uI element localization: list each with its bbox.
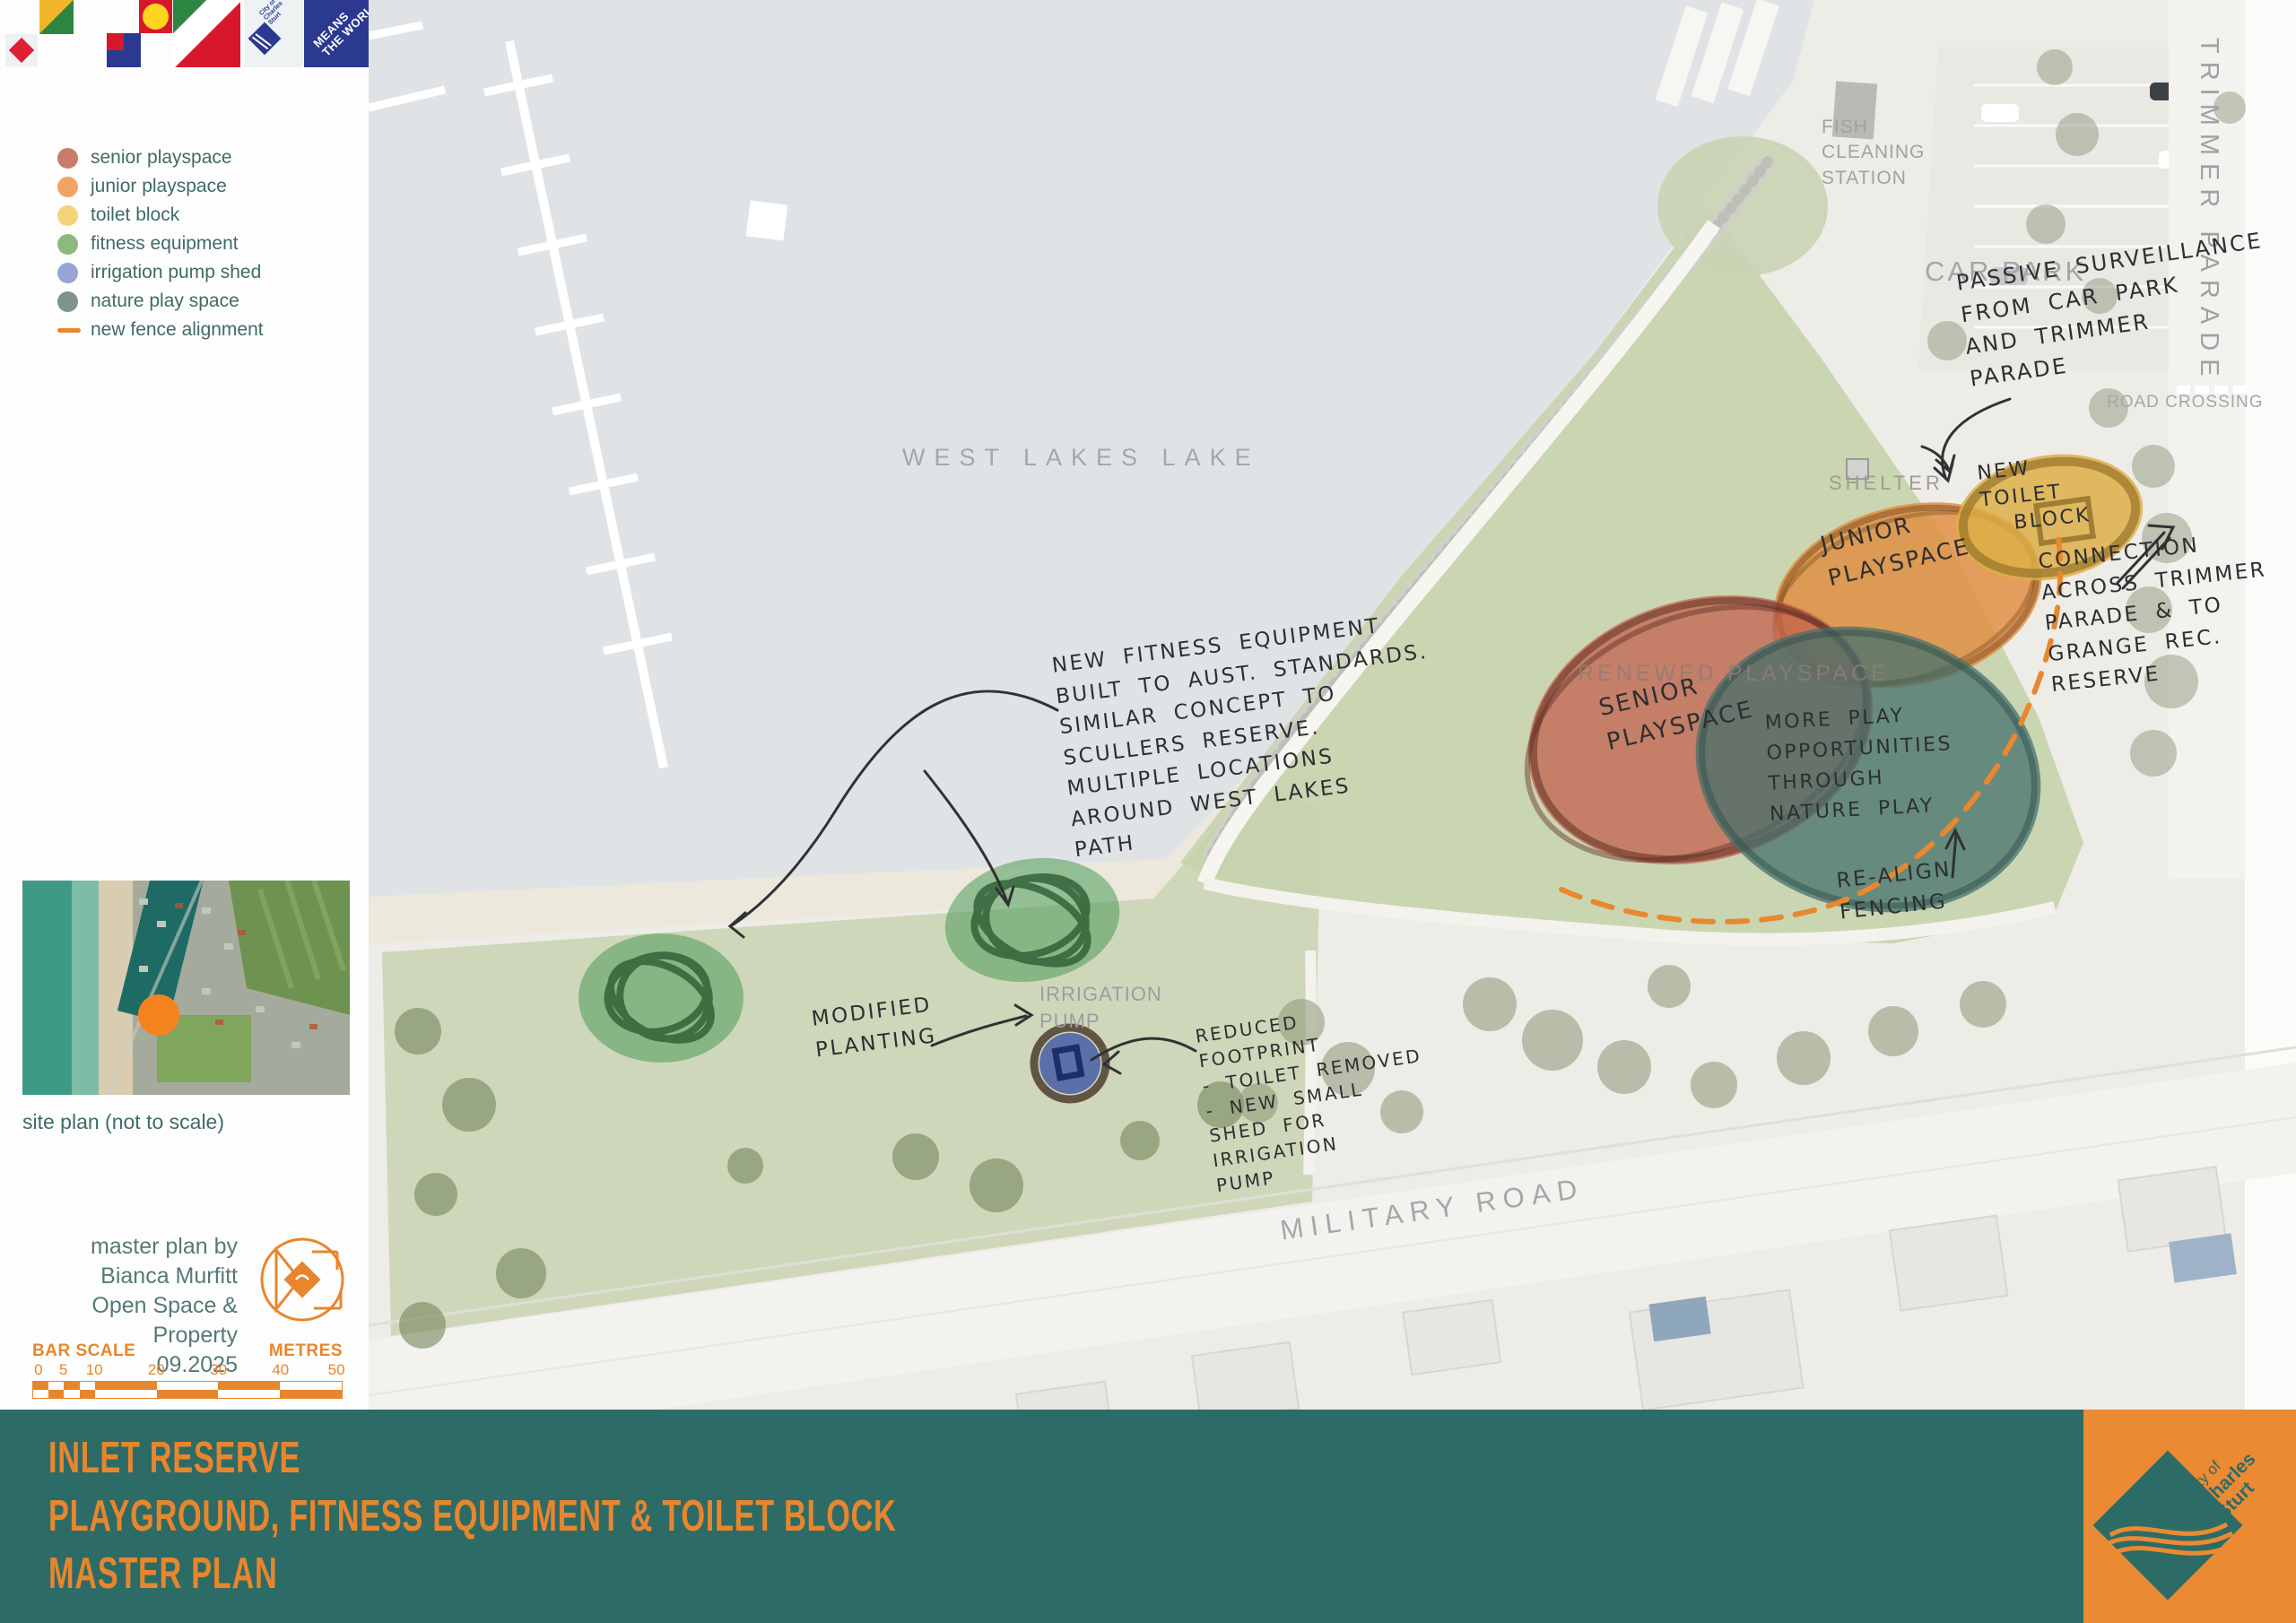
tick: 30	[210, 1361, 227, 1379]
label-fish-cleaning-station: FISH CLEANING STATION	[1822, 115, 1925, 191]
plan-title-line-1: INLET RESERVE	[48, 1429, 897, 1488]
means-the-world-text: MEANS THE WORLD	[311, 0, 369, 58]
junior-playspace-swatch-icon	[57, 177, 78, 197]
nature-play-space-swatch-icon	[57, 291, 78, 312]
brand-strip: City of Charles Sturt MEANS THE WORLD	[4, 0, 380, 72]
label-irrigation-pump: IRRIGATION PUMP	[1039, 981, 1162, 1034]
annotation-new-fitness-equipment: NEW FITNESS EQUIPMENT BUILT TO AUST. STA…	[1050, 605, 1448, 866]
bar-scale-ticks: 0 5 10 20 30 40 50	[32, 1361, 343, 1381]
legend-label: senior playspace	[91, 147, 232, 169]
legend-item-toilet-block: toilet block	[57, 201, 264, 230]
toilet-block-swatch-icon	[57, 205, 78, 226]
brand-tile-navy-red-icon	[107, 33, 141, 67]
credits-line: master plan by	[9, 1232, 238, 1262]
label-shelter: SHELTER	[1829, 470, 1944, 497]
legend-label: toilet block	[91, 204, 179, 226]
legend-item-senior-playspace: senior playspace	[57, 143, 264, 172]
tick: 0	[34, 1361, 42, 1379]
legend-label: nature play space	[91, 291, 239, 312]
footer-banner: INLET RESERVE PLAYGROUND, FITNESS EQUIPM…	[0, 1410, 2296, 1623]
credits-line: Bianca Murfitt	[9, 1262, 238, 1291]
council-logo-block: City of Charles Sturt	[2083, 1410, 2296, 1623]
fitness-equipment-swatch-icon	[57, 234, 78, 255]
plan-title-line-3: MASTER PLAN	[48, 1545, 897, 1603]
site-plan-thumbnail	[22, 881, 350, 1095]
master-plan-page: WEST LAKES LAKE CAR PARK FISH CLEANING S…	[0, 0, 2296, 1623]
site-location-marker	[138, 994, 179, 1036]
tick: 20	[148, 1361, 165, 1379]
plan-title-line-2: PLAYGROUND, FITNESS EQUIPMENT & TOILET B…	[48, 1488, 897, 1546]
tick: 50	[328, 1361, 345, 1379]
annotation-reduced-footprint: REDUCED FOOTPRINT - TOILET REMOVED - NEW…	[1194, 994, 1438, 1198]
means-the-world-tile: MEANS THE WORLD	[304, 0, 369, 67]
annotation-new-toilet-block: NEW TOILET BLOCK	[1976, 449, 2092, 540]
bar-scale-unit: METRES	[269, 1341, 343, 1361]
legend-label: irrigation pump shed	[91, 262, 261, 283]
sidebar: senior playspace junior playspace toilet…	[0, 0, 369, 1410]
city-of-charles-sturt-logo: City of Charles Sturt	[2083, 1410, 2296, 1623]
legend-item-new-fence-alignment: new fence alignment	[57, 316, 264, 344]
legend-item-junior-playspace: junior playspace	[57, 172, 264, 201]
irrigation-pump-zone	[1034, 1028, 1106, 1099]
tick: 40	[272, 1361, 289, 1379]
label-west-lakes-lake: WEST LAKES LAKE	[902, 441, 1260, 473]
legend-item-nature-play-space: nature play space	[57, 287, 264, 316]
legend: senior playspace junior playspace toilet…	[57, 143, 264, 344]
annotation-nature-play: MORE PLAY OPPORTUNITIES THROUGH NATURE P…	[1764, 699, 1956, 830]
fence-line-swatch-icon	[57, 328, 81, 333]
bar-scale-label: BAR SCALE	[32, 1341, 135, 1361]
legend-label: new fence alignment	[91, 319, 264, 341]
aerial-map: WEST LAKES LAKE CAR PARK FISH CLEANING S…	[369, 0, 2296, 1410]
bar-scale: BAR SCALE METRES 0 5 10 20 30 40 50	[32, 1341, 343, 1399]
legend-item-irrigation-pump-shed: irrigation pump shed	[57, 258, 264, 287]
annotation-realign-fencing: RE-ALIGN FENCING	[1835, 855, 1956, 928]
irrigation-pump-shed-swatch-icon	[57, 263, 78, 283]
brand-tile-yellow-circle-icon	[139, 0, 172, 33]
fitness-equipment-zone-1	[578, 933, 744, 1063]
legend-item-fitness-equipment: fitness equipment	[57, 230, 264, 258]
legend-label: fitness equipment	[91, 233, 239, 255]
plan-title: INLET RESERVE PLAYGROUND, FITNESS EQUIPM…	[48, 1429, 1260, 1603]
annotation-connection-trimmer-parade: CONNECTION ACROSS TRIMMER PARADE & TO GR…	[2037, 524, 2278, 701]
tick: 10	[86, 1361, 103, 1379]
senior-playspace-swatch-icon	[57, 148, 78, 169]
legend-label: junior playspace	[91, 176, 227, 197]
label-road-crossing: ROAD CROSSING	[2107, 391, 2264, 414]
site-plan-caption: site plan (not to scale)	[22, 1110, 224, 1134]
brand-tile-red-diamond-icon	[5, 34, 38, 66]
brand-tile-green-white-icon	[173, 0, 207, 33]
city-of-charles-sturt-logo-tile: City of Charles Sturt	[244, 0, 303, 67]
tick: 5	[59, 1361, 67, 1379]
brand-tile-yellow-green-icon	[39, 0, 74, 34]
bar-scale-bar	[32, 1381, 343, 1399]
open-space-property-logo-icon	[258, 1223, 348, 1344]
city-logo-diamond-icon	[248, 22, 282, 56]
